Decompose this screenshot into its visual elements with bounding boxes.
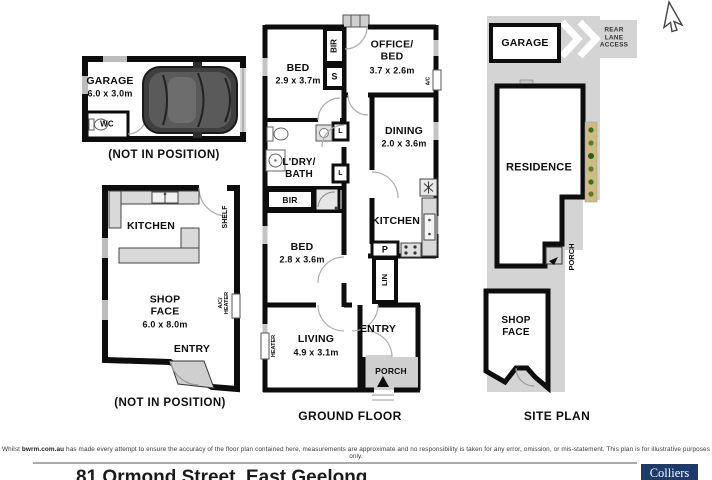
shop-kitchen-label: KITCHEN [127,220,175,232]
garage-dims-label: 6.0 x 3.0m [87,89,132,100]
colliers-logo: Colliers [641,464,698,480]
ac-unit [433,70,441,90]
office-name-label: OFFICE/ BED [371,39,414,64]
car-icon [143,62,237,138]
ac-heater-unit [232,294,240,318]
stove-icon [401,243,421,257]
shop-entry-label: ENTRY [174,343,210,355]
dining-dims-label: 2.0 x 3.6m [381,139,426,150]
living-name-label: LIVING [298,333,334,345]
sink-icon [424,214,435,240]
shelf-label: SHELF [222,206,230,229]
disclaimer-pre: Whilst [2,446,22,453]
office-dims-label: 3.7 x 2.6m [369,66,414,77]
disclaimer-brand: bwrm.com.au [22,446,64,453]
bed1-dims-label: 2.9 x 3.7m [275,76,320,87]
rear-lane-access-label: REAR LANE ACCESS [600,27,628,50]
bed2-dims-label: 2.8 x 3.6m [279,255,324,266]
toilet-icon [274,128,288,140]
ac-label: A/C [426,77,432,86]
pantry-label: P [382,244,388,255]
garage-caption: (NOT IN POSITION) [108,149,220,163]
kitchen-label: KITCHEN [372,215,420,227]
porch-label: PORCH [375,366,407,376]
site-plan-caption: SITE PLAN [524,409,590,423]
disclaimer-text: Whilst bwrm.com.au has made every attemp… [0,446,712,460]
bir1-label: BIR [330,39,339,53]
site-shop-label: SHOP FACE [501,315,530,339]
disclaimer-post: has made every attempt to ensure the acc… [64,446,710,460]
heater-unit [261,333,269,359]
garage-name-label: GARAGE [86,75,133,87]
ground-floor-caption: GROUND FLOOR [298,409,401,423]
residence-label: RESIDENCE [506,162,572,175]
dining-name-label: DINING [385,125,423,137]
site-porch-label: PORCH [568,243,576,270]
entry-label: ENTRY [360,323,396,335]
wc-label: WC [100,119,114,128]
bir2-label: BIR [282,195,297,205]
heater-label: HEATER [271,335,277,357]
shop-ac-heater-label: A/C/ HEATER [218,292,230,314]
ldry-bath-label: L'DRY/ BATH [282,157,315,181]
s-closet-label: S [331,72,337,83]
lin-label: LIN [381,274,389,286]
linen2-label: L [338,169,342,177]
greenery-strip [585,122,597,202]
shop-unit-drawing [105,188,240,389]
living-dims-label: 4.9 x 3.1m [293,348,338,359]
bed2-name-label: BED [291,241,314,253]
shop-name-label: SHOP FACE [150,294,181,319]
floorplan-page: GARAGE 6.0 x 3.0m WC (NOT IN POSITION) K… [0,0,712,480]
property-address: 81 Ormond Street, East Geelong [76,467,367,480]
site-garage-label: GARAGE [501,37,548,49]
linen1-label: L [338,127,342,135]
bed1-name-label: BED [287,62,310,74]
mouse-cursor-icon [664,2,682,32]
shop-caption: (NOT IN POSITION) [114,397,226,411]
shop-dims-label: 6.0 x 8.0m [142,320,187,331]
